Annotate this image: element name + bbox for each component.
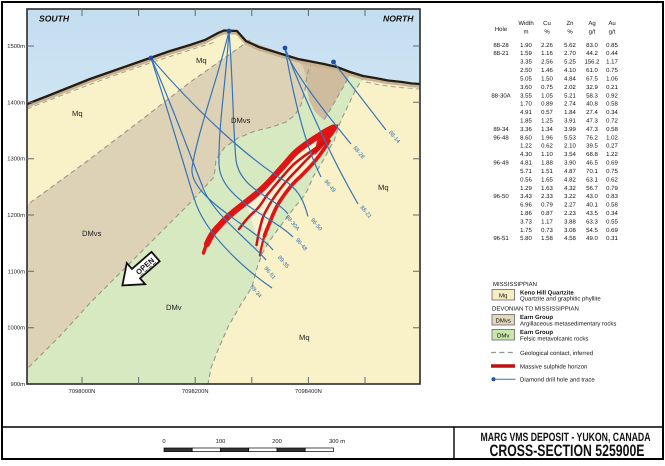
svg-text:DMv: DMv bbox=[497, 332, 509, 339]
svg-text:Quartzite and graphitic phylli: Quartzite and graphitic phyllite bbox=[520, 296, 601, 303]
svg-text:1100m: 1100m bbox=[8, 268, 25, 275]
svg-text:DMv: DMv bbox=[166, 303, 182, 312]
svg-text:Earn Group: Earn Group bbox=[520, 314, 553, 321]
svg-text:Geological contact, inferred: Geological contact, inferred bbox=[520, 350, 593, 357]
svg-text:7098400N: 7098400N bbox=[295, 388, 322, 395]
svg-text:Mq: Mq bbox=[378, 183, 389, 192]
svg-text:Keno Hill Quartzite: Keno Hill Quartzite bbox=[520, 289, 574, 296]
svg-text:Earn Group: Earn Group bbox=[520, 329, 553, 336]
svg-text:Massive sulphide horizon: Massive sulphide horizon bbox=[520, 363, 587, 370]
svg-text:300 m: 300 m bbox=[329, 438, 345, 445]
svg-text:Hole: Hole bbox=[495, 26, 508, 33]
svg-text:1000m: 1000m bbox=[7, 325, 25, 332]
svg-text:1300m: 1300m bbox=[7, 156, 25, 163]
svg-text:Mq: Mq bbox=[499, 292, 507, 299]
svg-text:7098200N: 7098200N bbox=[182, 388, 209, 395]
svg-text:SOUTH: SOUTH bbox=[39, 14, 70, 24]
svg-text:1500m: 1500m bbox=[7, 43, 25, 50]
svg-text:Mq: Mq bbox=[72, 109, 83, 118]
svg-text:7098000N: 7098000N bbox=[69, 388, 96, 395]
svg-text:NORTH: NORTH bbox=[383, 14, 414, 24]
svg-text:Mq: Mq bbox=[299, 333, 310, 342]
svg-text:Felsic metavolcanic rocks: Felsic metavolcanic rocks bbox=[520, 335, 588, 342]
svg-text:Diamond drill hole and trace: Diamond drill hole and trace bbox=[520, 377, 595, 384]
svg-text:DMvs: DMvs bbox=[496, 317, 511, 324]
svg-text:900m: 900m bbox=[10, 381, 25, 388]
svg-text:1200m: 1200m bbox=[7, 212, 25, 219]
svg-text:DEVONIAN TO MISSISSIPPIAN: DEVONIAN TO MISSISSIPPIAN bbox=[492, 306, 579, 313]
svg-text:0: 0 bbox=[162, 438, 165, 445]
svg-text:100: 100 bbox=[216, 438, 226, 445]
svg-text:200: 200 bbox=[272, 438, 282, 445]
svg-text:MISSISSIPPIAN: MISSISSIPPIAN bbox=[493, 281, 537, 288]
svg-text:DMvs: DMvs bbox=[82, 229, 102, 238]
svg-text:CROSS-SECTION 525900E: CROSS-SECTION 525900E bbox=[490, 442, 645, 460]
svg-text:1400m: 1400m bbox=[7, 99, 25, 106]
svg-text:DMvs: DMvs bbox=[231, 116, 251, 125]
svg-text:Mq: Mq bbox=[196, 56, 207, 65]
svg-text:Argillaceous metasedimentary r: Argillaceous metasedimentary rocks bbox=[520, 320, 616, 327]
